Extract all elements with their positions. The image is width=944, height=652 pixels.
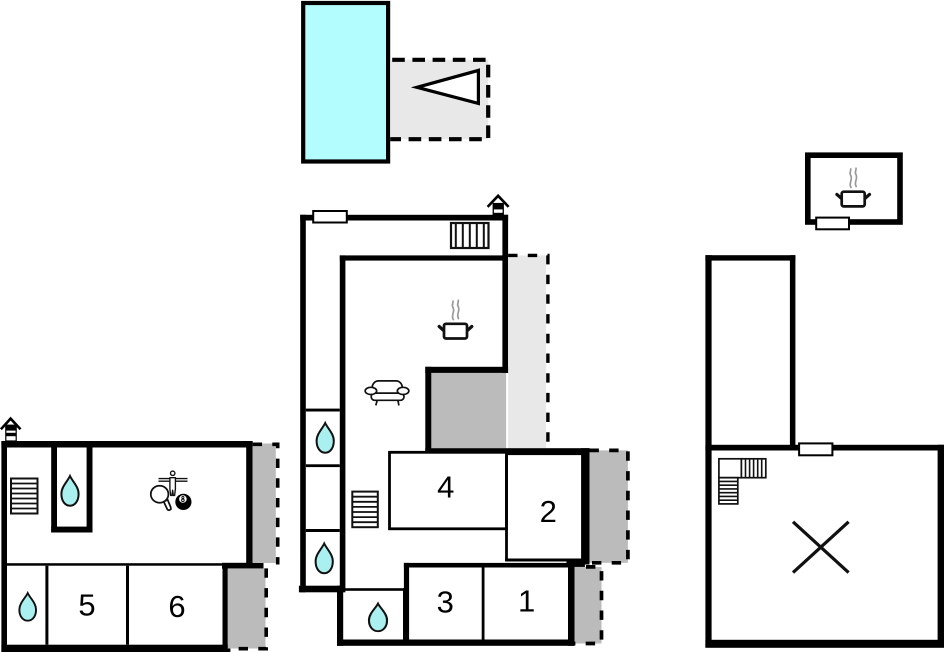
svg-text:2: 2	[540, 494, 557, 529]
svg-text:5: 5	[78, 588, 95, 623]
svg-text:4: 4	[437, 469, 454, 504]
svg-text:1: 1	[518, 583, 535, 618]
svg-text:6: 6	[168, 589, 185, 624]
svg-text:3: 3	[437, 585, 454, 620]
